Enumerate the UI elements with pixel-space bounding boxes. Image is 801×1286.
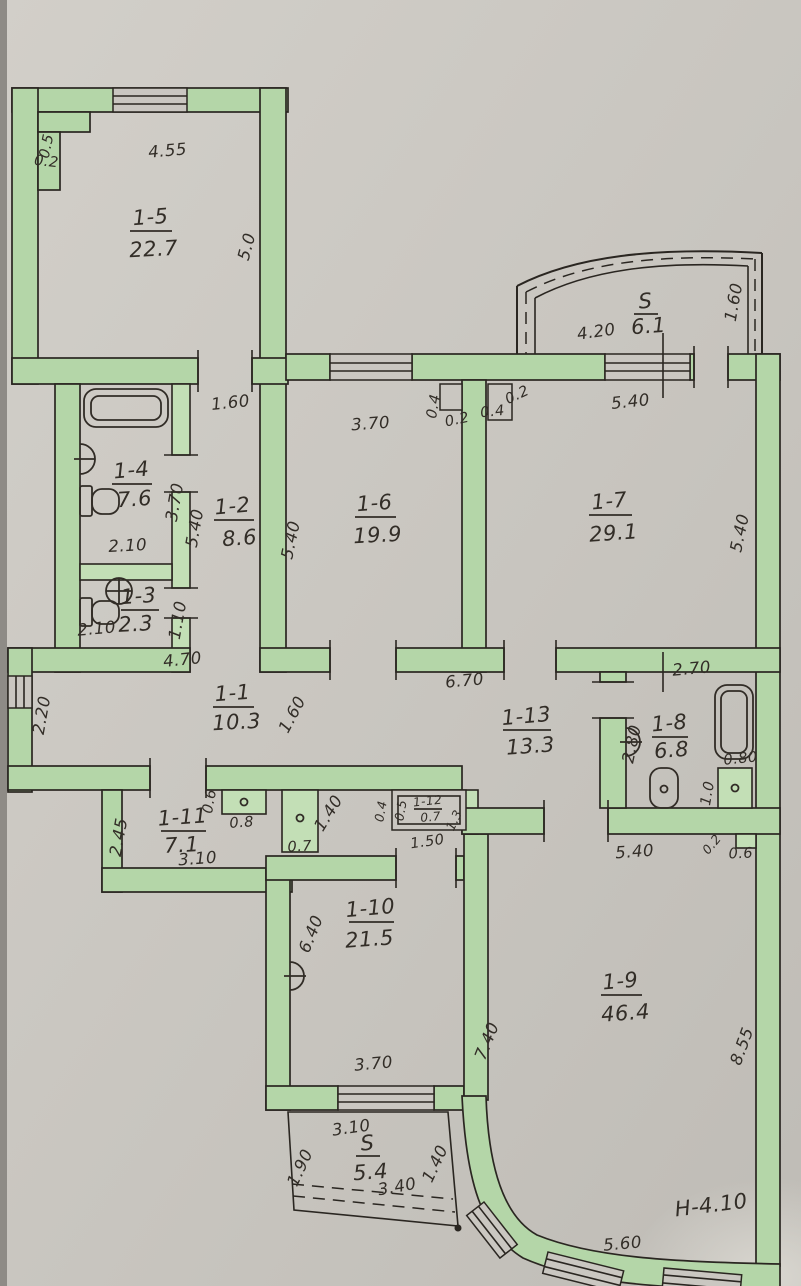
room-label-1-8: 1-8 6.8 — [651, 710, 690, 764]
dimension-label: 3.10 — [178, 848, 218, 870]
window — [330, 354, 412, 380]
dimension-label: 5.60 — [602, 1232, 642, 1254]
wall-segment — [600, 672, 626, 682]
room-label-1-3: 1-3 2.3 — [118, 583, 159, 637]
room-id-label: 1-3 — [120, 583, 157, 609]
dimension-label: 5.40 — [615, 841, 655, 863]
room-area-label: 19.9 — [353, 522, 403, 549]
dimension-label: 6.70 — [444, 669, 484, 691]
room-id-label: S — [637, 288, 653, 313]
wall-segment — [266, 1086, 338, 1110]
wall-segment — [266, 868, 290, 1110]
room-id-label: 1-5 — [132, 204, 169, 230]
dimension-label: 2.10 — [76, 617, 116, 639]
wall-segment — [286, 354, 330, 380]
window — [338, 1086, 434, 1110]
wall-segment — [608, 808, 780, 834]
corner-dot — [455, 1225, 462, 1232]
dimension-label: 2.70 — [671, 657, 711, 679]
shaft — [718, 768, 752, 808]
room-area-label: 22.7 — [129, 236, 179, 263]
room-area-label: 29.1 — [588, 519, 638, 546]
dimension-label: 4.70 — [162, 648, 203, 671]
dimension-label: 2.10 — [108, 535, 148, 556]
dimension-label: 3.70 — [353, 1052, 393, 1074]
dimension-label: 0.7 — [287, 838, 313, 855]
window — [605, 354, 690, 380]
wall-segment — [462, 808, 544, 834]
room-id-label: 1-1 — [214, 680, 251, 706]
room-area-label: 6.8 — [653, 737, 689, 763]
dimension-label: 0.4 — [480, 403, 506, 421]
wall-segment — [206, 766, 462, 790]
room-area-label: 10.3 — [212, 709, 262, 736]
room-area-label: 7.6 — [116, 486, 152, 512]
window — [8, 676, 32, 708]
wall-segment — [80, 564, 172, 580]
room-id-label: 1-10 — [345, 894, 397, 922]
wall-segment — [456, 856, 464, 880]
wall-segment — [252, 358, 288, 384]
room-area-label: 46.4 — [600, 999, 650, 1026]
wall-segment — [556, 648, 780, 672]
wall-segment — [8, 766, 150, 790]
room-id-label: 1-2 — [214, 493, 252, 520]
photo-edge — [0, 0, 7, 1286]
room-area-label: 13.3 — [505, 732, 555, 759]
wall-segment — [260, 648, 330, 672]
dimension-label: 5.40 — [610, 390, 651, 413]
room-id-label: 1-7 — [591, 488, 629, 515]
floor-plan-photo: 1-5 22.7 1-4 7.6 1-2 8.6 1-3 2.3 1-6 19.… — [0, 0, 801, 1286]
dimension-label: 0.6 — [728, 846, 753, 863]
room-id-label: 1-8 — [651, 710, 689, 737]
room-area-label: 6.1 — [630, 313, 666, 339]
wall-segment — [600, 718, 626, 808]
room-label-1-13: 1-13 13.3 — [501, 702, 556, 760]
wall-segment — [172, 384, 190, 455]
room-id-label: 1-6 — [356, 490, 393, 516]
floor-plan-drawing: 1-5 22.7 1-4 7.6 1-2 8.6 1-3 2.3 1-6 19.… — [0, 0, 801, 1286]
wall-segment — [412, 354, 605, 380]
dimension-label: 1.60 — [210, 391, 251, 414]
dimension-label: 0.2 — [33, 153, 59, 171]
dimension-label: 0.8 — [229, 814, 255, 832]
shaft — [222, 790, 266, 814]
room-area-label: 0.7 — [420, 809, 442, 825]
room-label-1-4: 1-4 7.6 — [112, 457, 153, 513]
wall-segment — [12, 358, 198, 384]
room-id-label: 1-4 — [113, 457, 151, 484]
wall-segment — [434, 1086, 464, 1110]
room-id-label: 1-13 — [501, 702, 553, 730]
room-area-label: 2.3 — [118, 611, 154, 637]
window — [113, 88, 187, 112]
dimension-label: 3.70 — [351, 413, 391, 435]
wall-segment — [102, 868, 292, 892]
room-area-label: 8.6 — [221, 525, 257, 551]
room-id-label: 1-9 — [602, 968, 640, 995]
wall-segment — [12, 88, 38, 384]
wall-segment — [396, 648, 504, 672]
room-area-label: 21.5 — [344, 925, 394, 952]
wall-segment — [38, 112, 90, 132]
wall-segment — [266, 856, 396, 880]
dimension-label: 4.55 — [147, 139, 187, 161]
